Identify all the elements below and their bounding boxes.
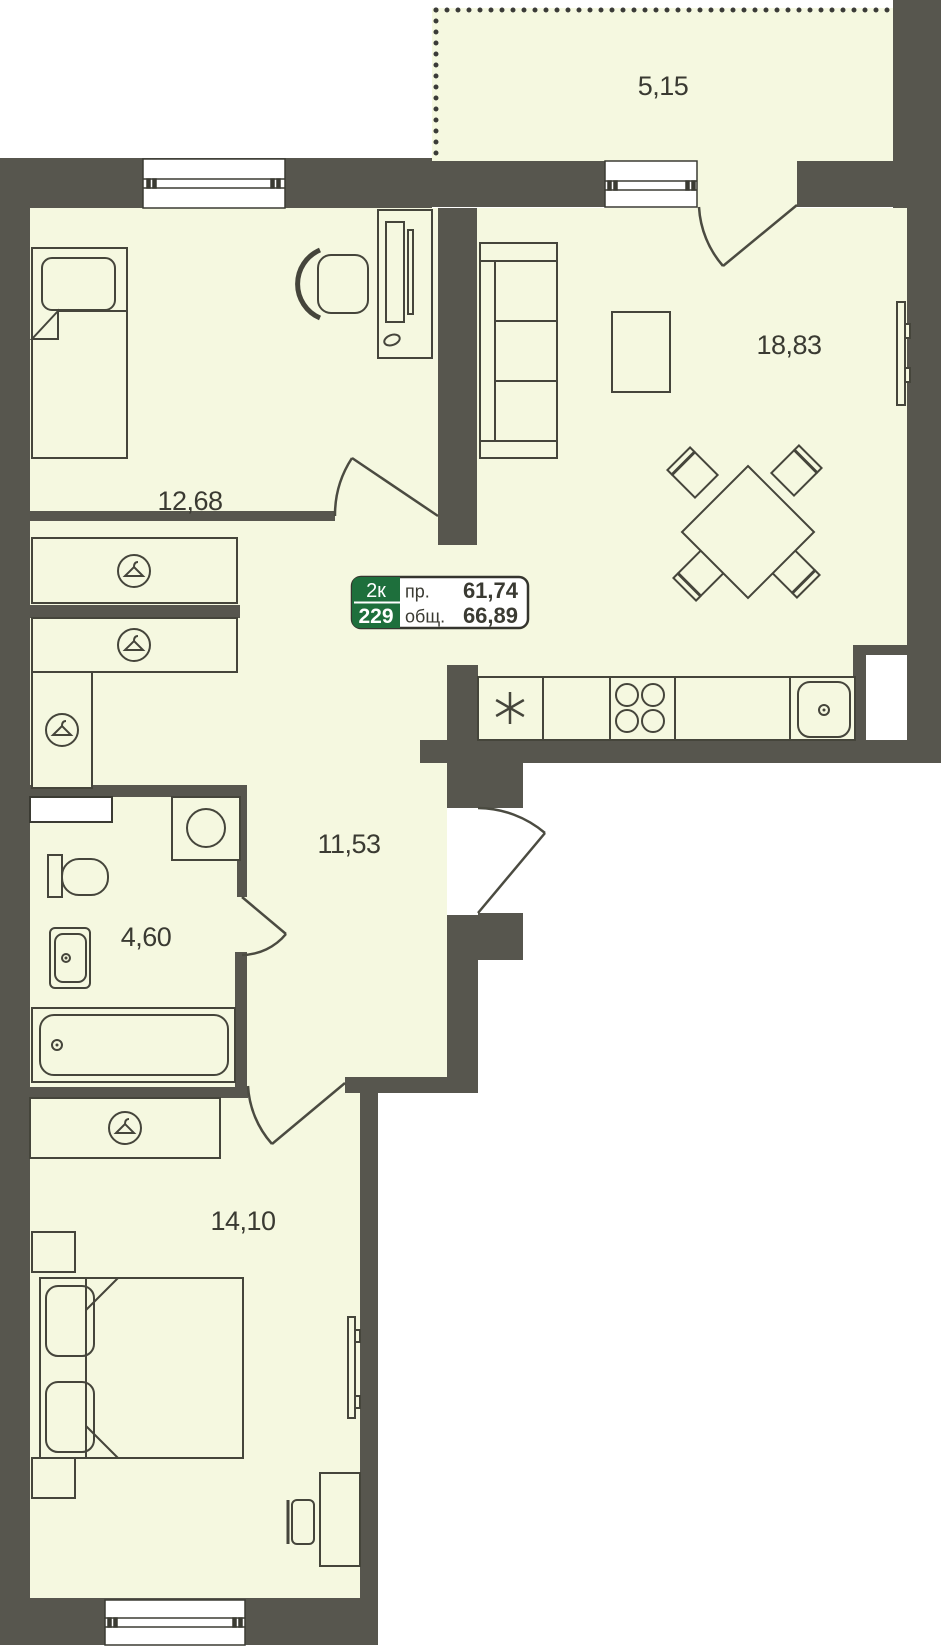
hallway-area-label: 11,53 xyxy=(317,829,380,859)
window-bedroom-bottom xyxy=(105,1600,245,1645)
total-area-value: 66,89 xyxy=(463,603,518,628)
nightstand xyxy=(32,1232,75,1272)
door-entrance xyxy=(478,808,545,913)
entrance-door-opening xyxy=(447,808,478,915)
wall-entry-stub-bottom xyxy=(478,913,523,960)
wall-right-corner xyxy=(893,0,941,208)
balcony-area-label: 5,15 xyxy=(638,71,689,101)
bathroom-area-label: 4,60 xyxy=(121,922,172,952)
window-living xyxy=(605,161,697,207)
wall-bedroom2-right xyxy=(360,1077,378,1645)
wall-entry-stub-top xyxy=(478,763,523,808)
dining-set xyxy=(667,445,821,600)
bathroom-sink xyxy=(50,928,90,988)
sofa xyxy=(480,243,557,458)
type-badge-text: 2к xyxy=(366,580,386,602)
wall-kitchen-bottom xyxy=(420,740,941,763)
wardrobe xyxy=(32,618,237,672)
wardrobe xyxy=(32,672,92,788)
wall-mid-vertical xyxy=(438,208,477,545)
wardrobe xyxy=(30,1098,220,1158)
living-area-label-text: пр. xyxy=(405,582,430,602)
toilet xyxy=(48,855,108,897)
kitchen xyxy=(478,677,855,740)
balcony-door-gap xyxy=(697,160,797,208)
washing-machine xyxy=(172,797,240,860)
wardrobe xyxy=(32,538,237,603)
floorplan-svg: 5,15 12,68 18,83 11,53 4,60 14,10 2к 229… xyxy=(0,0,941,1649)
wall-bedroom2-top-left xyxy=(30,1087,248,1098)
double-bed xyxy=(40,1278,243,1458)
window-bedroom-top xyxy=(143,159,285,208)
wall-left-outer xyxy=(0,158,30,1645)
unit-info-card[interactable]: 2к 229 пр. общ. 61,74 66,89 xyxy=(352,577,528,628)
single-bed xyxy=(32,248,127,458)
living-area-value: 61,74 xyxy=(463,578,519,603)
wall-top-right xyxy=(797,161,893,207)
wall-entry-bottom xyxy=(447,915,478,1087)
bedroom-top-area-label: 12,68 xyxy=(157,486,222,516)
wall-bathtub-right xyxy=(235,952,247,1087)
bathtub xyxy=(32,1008,235,1082)
bedroom-bottom-area-label: 14,10 xyxy=(210,1206,275,1236)
unit-number-text: 229 xyxy=(358,605,393,628)
wall-wardrobe-divider xyxy=(30,605,240,618)
ventilation-shaft xyxy=(866,655,907,740)
wall-right-outer xyxy=(907,208,941,645)
desk xyxy=(378,210,432,358)
floorplan-page: 5,15 12,68 18,83 11,53 4,60 14,10 2к 229… xyxy=(0,0,941,1649)
sink-icon xyxy=(798,682,850,737)
total-area-label-text: общ. xyxy=(405,607,445,627)
coffee-table xyxy=(612,312,670,392)
living-area-label: 18,83 xyxy=(756,330,821,360)
wall-kitchen-left-stub xyxy=(447,665,478,740)
wall-entry-top xyxy=(447,740,478,808)
nightstand xyxy=(32,1458,75,1498)
bathroom-slide-door xyxy=(30,797,112,822)
